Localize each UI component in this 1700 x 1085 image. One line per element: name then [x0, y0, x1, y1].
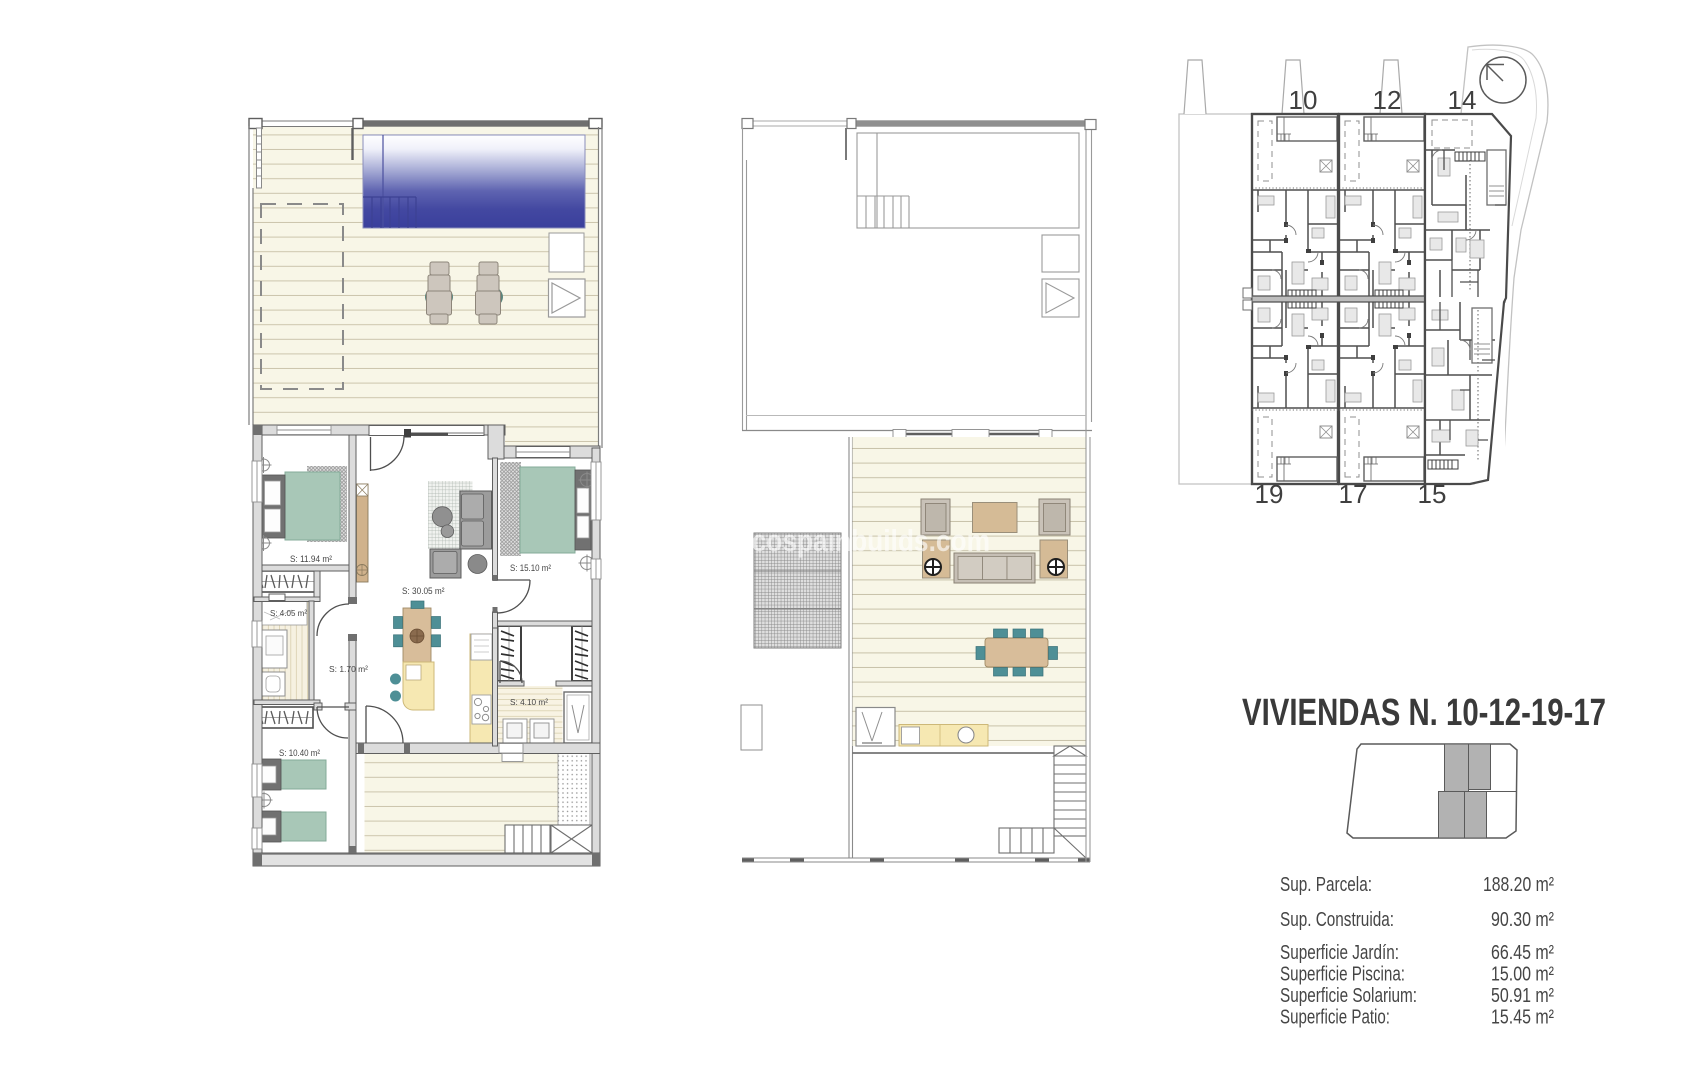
svg-text:S: 4.10 m²: S: 4.10 m² — [510, 697, 548, 707]
svg-text:Superficie Solarium:: Superficie Solarium: — [1280, 985, 1417, 1007]
svg-text:19: 19 — [1255, 479, 1284, 509]
svg-text:15.45 m²: 15.45 m² — [1491, 1007, 1554, 1029]
svg-text:VIVIENDAS N. 10-12-19-17: VIVIENDAS N. 10-12-19-17 — [1242, 692, 1606, 734]
svg-text:10: 10 — [1289, 85, 1318, 115]
svg-text:12: 12 — [1373, 85, 1402, 115]
svg-text:15: 15 — [1418, 479, 1447, 509]
svg-text:Sup. Construida:: Sup. Construida: — [1280, 909, 1394, 931]
svg-text:Sup. Parcela:: Sup. Parcela: — [1280, 874, 1372, 896]
svg-text:15.00 m²: 15.00 m² — [1491, 964, 1554, 986]
svg-text:17: 17 — [1339, 479, 1368, 509]
svg-text:S: 1.70 m²: S: 1.70 m² — [329, 664, 368, 674]
svg-text:14: 14 — [1448, 85, 1477, 115]
svg-text:S: 4.05 m²: S: 4.05 m² — [270, 608, 307, 618]
svg-text:188.20 m²: 188.20 m² — [1483, 874, 1554, 896]
svg-text:S: 30.05 m²: S: 30.05 m² — [402, 586, 445, 597]
svg-text:Superficie Piscina:: Superficie Piscina: — [1280, 964, 1405, 986]
svg-text:Superficie Jardín:: Superficie Jardín: — [1280, 942, 1399, 964]
svg-text:50.91 m²: 50.91 m² — [1491, 985, 1554, 1007]
svg-text:66.45 m²: 66.45 m² — [1491, 942, 1554, 964]
svg-text:ecospainbuilds.com: ecospainbuilds.com — [737, 523, 990, 558]
svg-text:S: 10.40 m²: S: 10.40 m² — [279, 748, 320, 759]
svg-text:S: 15.10 m²: S: 15.10 m² — [510, 563, 551, 574]
svg-text:Superficie Patio:: Superficie Patio: — [1280, 1007, 1390, 1029]
svg-text:90.30 m²: 90.30 m² — [1491, 909, 1554, 931]
svg-text:S: 11.94 m²: S: 11.94 m² — [290, 554, 332, 565]
